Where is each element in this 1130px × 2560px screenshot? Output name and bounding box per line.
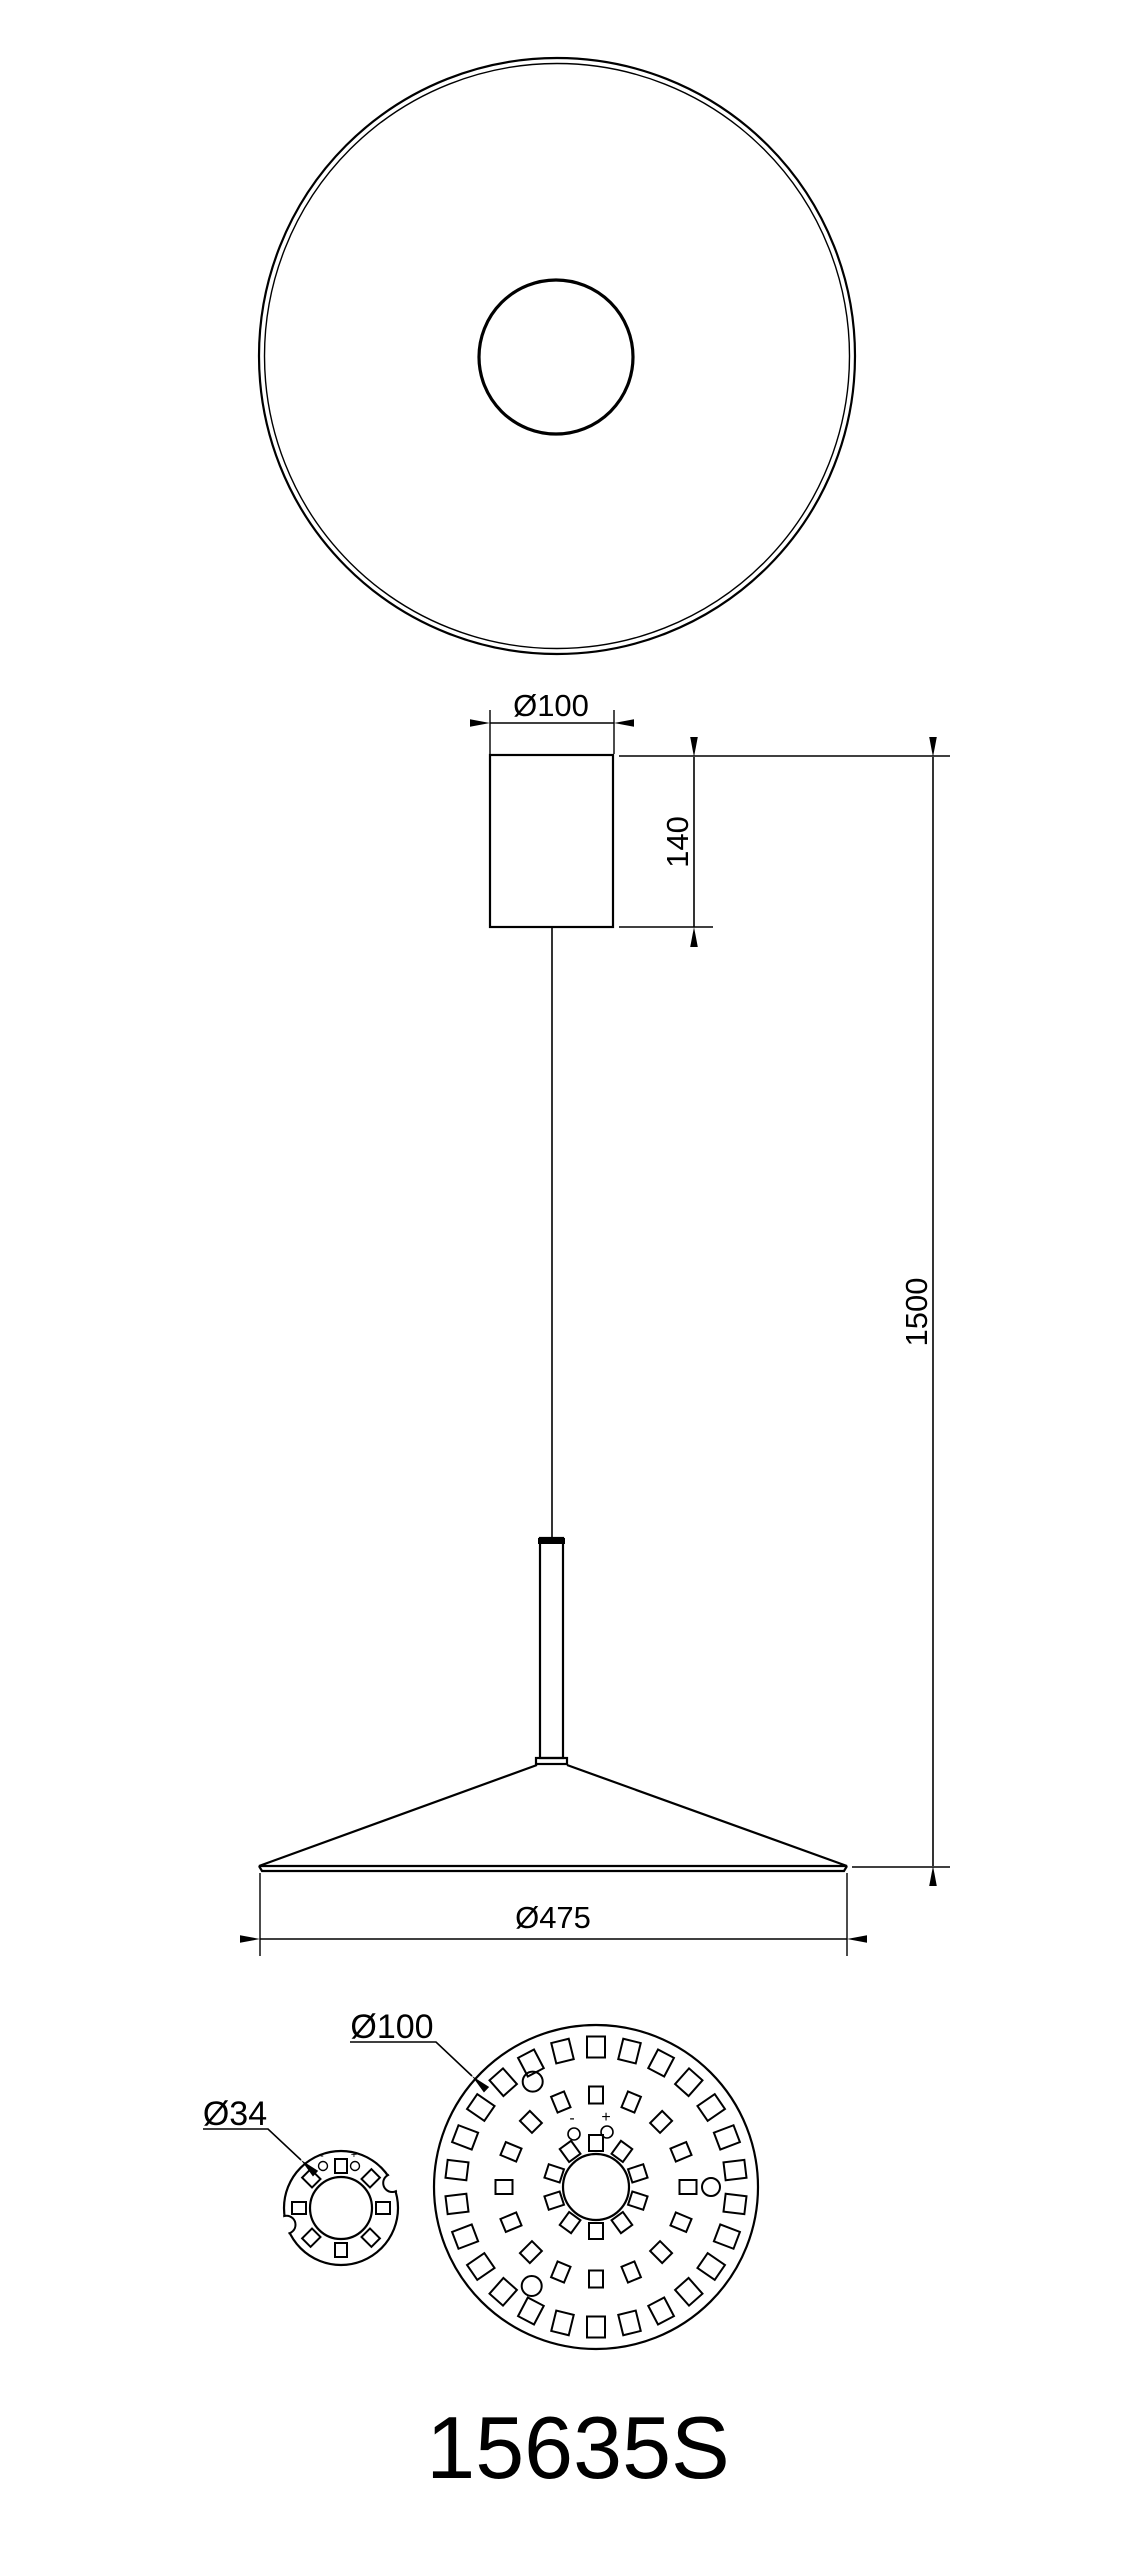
led-pad [618,2039,640,2064]
led-pad [544,2164,564,2182]
led-pad [670,2212,691,2231]
led-pad [670,2142,691,2161]
pendant-lamp-technical-drawing: Ø100 140 1500 Ø475 [0,0,1130,2560]
led-pad [628,2191,648,2209]
led-pad [587,2317,605,2338]
canopy-side-view [490,755,613,927]
adapter-leader [203,2129,301,2160]
led-pad [589,2271,603,2288]
led-pad [697,2253,725,2280]
led-mount-hole [522,2276,542,2296]
adapter-polarity-minus-mark: - [320,2150,324,2162]
led-pad [551,2261,570,2282]
led-pad [467,2094,495,2121]
led-pad [520,2241,542,2263]
adapter-pad [362,2229,380,2247]
shade-side-view [259,1765,847,1871]
led-pad [490,2068,517,2096]
canopy-body [490,755,613,927]
led-board-diameter-label: Ø100 [350,2008,433,2046]
adapter-pad [335,2159,347,2173]
polarity-plus-hole [601,2126,613,2138]
led-pad [518,2298,544,2325]
canopy-height-label: 140 [660,816,695,868]
led-pad [490,2278,517,2306]
adapter-polarity-plus-mark: + [351,2149,357,2161]
led-pad [648,2050,674,2077]
led-pad [452,2224,478,2248]
led-pad [445,2194,468,2214]
adapter-pad [292,2202,306,2214]
leader-line [350,2042,472,2076]
led-pad [452,2125,478,2149]
led-pad [500,2212,521,2231]
led-pad [544,2191,564,2209]
led-pad [650,2111,672,2133]
led-pad [520,2111,542,2133]
shade-outer-rim-circle [259,58,855,654]
led-board-center-hole [563,2154,629,2220]
stem [536,1538,567,1764]
led-pad [467,2253,495,2280]
led-pad [589,2135,603,2151]
led-pad [587,2037,605,2058]
led-pad [675,2278,702,2306]
led-polarity-plus-mark: + [601,2109,610,2126]
adapter-center-hole [310,2177,372,2239]
adapter-diameter-label: Ø34 [203,2095,267,2133]
stem-flange [536,1758,567,1764]
drawing-page: Ø100 140 1500 Ø475 [0,0,1130,2560]
led-pad [628,2164,648,2182]
model-number: 15635S [426,2398,729,2497]
adapter-notch [383,2174,401,2192]
led-pad [551,2039,573,2064]
led-pad [589,2087,603,2104]
polarity-minus-hole [568,2128,580,2140]
shade-top-view [259,58,855,654]
adapter-polarity-plus-hole [351,2162,360,2171]
led-pad [675,2068,702,2096]
adapter-polarity-minus-hole [319,2162,328,2171]
adapter-pad [302,2229,320,2247]
led-pad [650,2241,672,2263]
led-pad [551,2091,570,2112]
adapter-notches [278,2174,402,2234]
adapter-pad [362,2169,380,2187]
led-pad [714,2125,740,2149]
led-mount-hole [702,2178,720,2196]
stem-tube [540,1538,563,1758]
led-pad [723,2160,746,2180]
adapter-pad [335,2243,347,2257]
shade-inner-rim-circle [265,64,850,649]
led-pad [648,2298,674,2325]
led-pad [445,2160,468,2180]
adapter-notch [278,2216,296,2234]
led-board-detail [434,2025,758,2349]
led-pad [621,2091,640,2112]
adapter-pad [302,2169,320,2187]
adapter-pads [292,2159,390,2257]
adapter-ring-detail [278,2151,402,2265]
cone-outline [259,1765,847,1866]
led-pad [697,2094,725,2121]
led-pad [618,2311,640,2336]
led-pad [680,2180,697,2194]
shade-diameter-label: Ø475 [515,1900,591,1935]
led-pad [500,2142,521,2161]
led-pad [589,2223,603,2239]
led-pad [621,2261,640,2282]
led-pad [551,2311,573,2336]
led-pad [714,2224,740,2248]
led-board-leader [350,2042,472,2076]
canopy-circle-top-view [479,280,633,434]
suspension-length-label: 1500 [899,1278,934,1347]
adapter-outline [284,2151,398,2265]
led-polarity-minus-mark: - [569,2110,574,2127]
canopy-diameter-label: Ø100 [513,688,589,723]
led-pad [723,2194,746,2214]
led-pad [496,2180,513,2194]
led-board-outline [434,2025,758,2349]
adapter-pad [376,2202,390,2214]
leader-line [203,2129,301,2160]
led-mount-holes [522,2072,720,2296]
